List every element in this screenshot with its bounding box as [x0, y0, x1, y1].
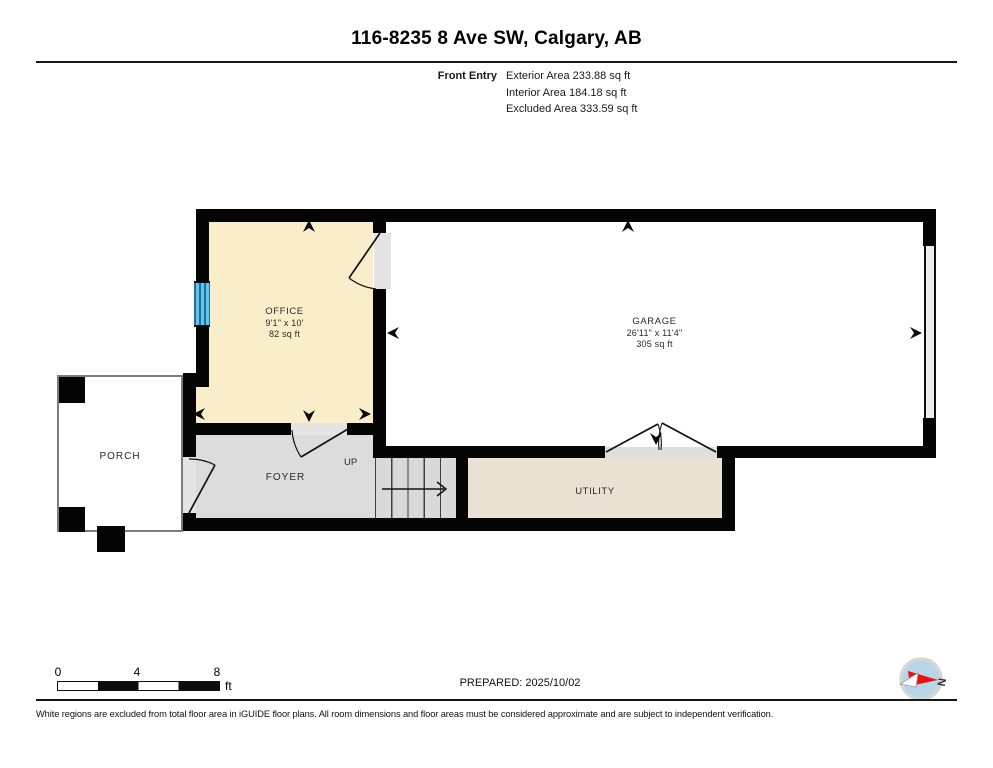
porch-door-panel	[183, 457, 196, 513]
wall-garage-right-upper	[923, 209, 936, 246]
foyer-door-panel	[291, 423, 347, 435]
wall-office-garage-upper	[373, 209, 386, 233]
office-area: 82 sq ft	[196, 329, 373, 341]
excluded-area-line: Excluded Area 333.59 sq ft	[506, 103, 637, 115]
porch-post	[59, 507, 85, 532]
porch-post	[97, 526, 125, 552]
plan-name-label: Front Entry	[340, 70, 497, 82]
exterior-area-line: Exterior Area 233.88 sq ft	[506, 70, 637, 82]
wall-bottom	[183, 518, 735, 531]
wall-office-garage-lower	[373, 289, 386, 458]
scale-tick-4: 4	[129, 665, 145, 679]
scale-tick-0: 0	[50, 665, 66, 679]
porch-label: PORCH	[57, 451, 183, 463]
area-summary: Exterior Area 233.88 sq ft Interior Area…	[506, 70, 637, 115]
page-title: 116-8235 8 Ave SW, Calgary, AB	[0, 28, 993, 50]
porch-post	[59, 377, 85, 403]
foyer-label: FOYER	[196, 472, 375, 484]
garage-dimensions: 26'11" x 11'4"	[386, 328, 923, 340]
wall-porch-right-upper	[183, 385, 196, 457]
scale-unit-label: ft	[225, 679, 232, 693]
wall-garage-bottom-right	[717, 446, 936, 458]
stairs	[375, 458, 456, 518]
wall-stairs-utility	[456, 458, 468, 518]
garage-label: GARAGE 26'11" x 11'4" 305 sq ft	[386, 316, 923, 351]
stairs-up-label: UP	[344, 457, 357, 468]
office-door-panel	[374, 233, 391, 289]
wall-office-bottom-left	[183, 423, 291, 435]
garage-area: 305 sq ft	[386, 339, 923, 351]
office-name: OFFICE	[196, 306, 373, 318]
office-room-extension	[196, 387, 209, 423]
office-dimensions: 9'1" x 10'	[196, 318, 373, 330]
wall-garage-bottom-left	[373, 446, 605, 458]
utility-door-threshold	[605, 447, 717, 458]
wall-top	[196, 209, 936, 222]
disclaimer-text: White regions are excluded from total fl…	[36, 709, 773, 719]
garage-name: GARAGE	[386, 316, 923, 328]
floor-plan-page: 116-8235 8 Ave SW, Calgary, AB Front Ent…	[0, 0, 993, 768]
office-label: OFFICE 9'1" x 10' 82 sq ft	[196, 306, 373, 341]
interior-area-line: Interior Area 184.18 sq ft	[506, 87, 637, 99]
utility-label: UTILITY	[468, 486, 722, 498]
prepared-date-label: PREPARED: 2025/10/02	[420, 677, 620, 689]
footer-divider	[36, 699, 957, 701]
scale-bar	[57, 681, 220, 691]
garage-door-icon	[924, 246, 936, 418]
title-divider	[36, 61, 957, 63]
scale-tick-8: 8	[209, 665, 225, 679]
